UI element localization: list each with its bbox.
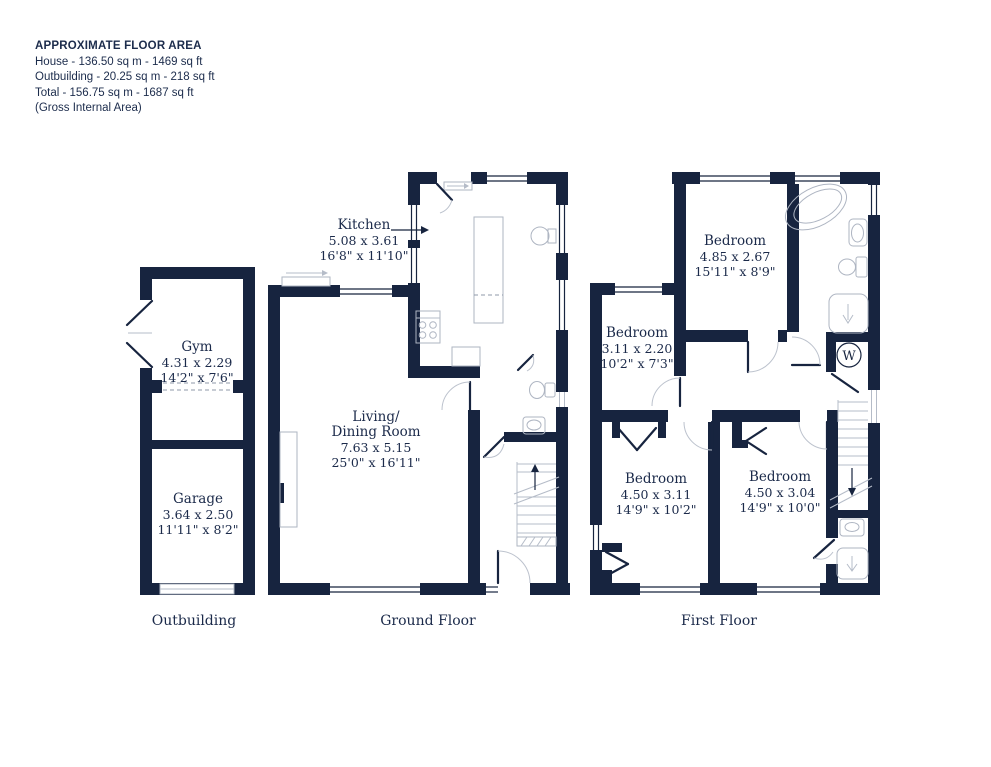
chimney-breast bbox=[280, 432, 297, 527]
floor-area-summary: APPROXIMATE FLOOR AREA House - 136.50 sq… bbox=[35, 39, 215, 117]
summary-gia: (Gross Internal Area) bbox=[35, 101, 215, 117]
kitchen-wc-door bbox=[518, 355, 534, 371]
room-label-bedroom1: Bedroom 4.85 x 2.67 15'11" x 8'9" bbox=[694, 234, 775, 279]
bedroom4-door bbox=[799, 422, 827, 449]
closet-doors-bedroom4 bbox=[746, 428, 766, 454]
kitchen-top-door bbox=[437, 182, 472, 213]
entrance-door bbox=[498, 551, 530, 583]
staircase-ground bbox=[514, 462, 559, 546]
wardrobe-door bbox=[832, 374, 858, 392]
kitchen-counter bbox=[452, 347, 480, 366]
room-label-kitchen: Kitchen 5.08 x 3.61 16'8" x 11'10" bbox=[319, 218, 408, 263]
ground-floor-walls bbox=[268, 172, 570, 595]
bathroom-sink bbox=[849, 219, 867, 246]
ensuite-shower bbox=[837, 548, 868, 579]
wardrobe: W bbox=[837, 343, 861, 367]
bedroom2-door bbox=[652, 378, 680, 406]
outbuilding-walls bbox=[140, 267, 255, 595]
living-hall-door bbox=[442, 382, 470, 410]
floor-label-outbuilding: Outbuilding bbox=[152, 613, 236, 629]
room-label-bedroom4: Bedroom 4.50 x 3.04 14'9" x 10'0" bbox=[739, 470, 820, 515]
room-label-garage: Garage 3.64 x 2.50 11'11" x 8'2" bbox=[157, 492, 238, 537]
room-label-bedroom2: Bedroom 3.11 x 2.20 10'2" x 7'3" bbox=[600, 326, 673, 371]
room-label-living-dining: Living/ Dining Room 7.63 x 5.15 25'0" x … bbox=[331, 410, 420, 470]
wc-door bbox=[484, 437, 504, 457]
ensuite-sink bbox=[840, 519, 864, 536]
garage-door bbox=[160, 584, 234, 594]
floor-label-first: First Floor bbox=[681, 613, 757, 629]
wardrobe-label: W bbox=[842, 349, 856, 364]
summary-outbuilding: Outbuilding - 20.25 sq m - 218 sq ft bbox=[35, 70, 215, 86]
ground-floor-plan bbox=[268, 172, 570, 595]
summary-title: APPROXIMATE FLOOR AREA bbox=[35, 39, 215, 55]
bathroom-shower bbox=[829, 294, 868, 333]
kitchen-island bbox=[474, 217, 503, 323]
wc-toilet bbox=[530, 382, 556, 399]
summary-total: Total - 156.75 sq m - 1687 sq ft bbox=[35, 86, 215, 102]
outbuilding-entry-doors bbox=[127, 301, 152, 367]
summary-house: House - 136.50 sq m - 1469 sq ft bbox=[35, 55, 215, 71]
outbuilding-plan bbox=[127, 267, 255, 595]
floor-label-ground: Ground Floor bbox=[380, 613, 476, 629]
living-sliding-door bbox=[282, 270, 330, 286]
room-label-gym: Gym 4.31 x 2.29 14'2" x 7'6" bbox=[160, 340, 233, 385]
ensuite-door bbox=[814, 540, 834, 559]
bathroom-door bbox=[792, 337, 820, 365]
room-label-bedroom3: Bedroom 4.50 x 3.11 14'9" x 10'2" bbox=[615, 472, 696, 517]
bathroom-toilet bbox=[839, 257, 868, 277]
bedroom1-door bbox=[748, 342, 778, 372]
wc-sink bbox=[523, 417, 545, 434]
kitchen-sink bbox=[531, 227, 556, 245]
bedroom3-door bbox=[684, 422, 712, 450]
floorplan-page: W APPROXIMATE FLOOR AREA House - 136.50 … bbox=[0, 0, 991, 767]
